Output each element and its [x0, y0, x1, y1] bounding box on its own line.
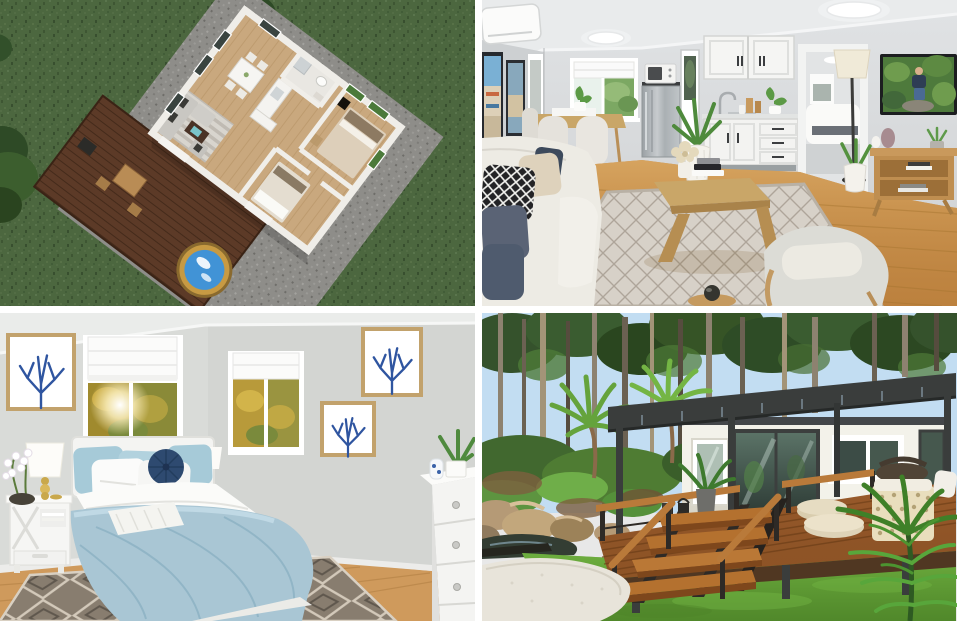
window-left	[83, 335, 183, 451]
floorplan-scene	[0, 0, 475, 306]
art-frame-coral	[322, 403, 374, 457]
roman-blind	[88, 337, 177, 379]
armchair-cushion	[781, 241, 863, 280]
gallery-photo-exterior[interactable]	[482, 313, 957, 621]
gallery-photo-floorplan[interactable]	[0, 0, 475, 306]
navy-round-cushion	[148, 449, 184, 485]
pergola-post	[834, 403, 840, 497]
gold-dish	[50, 495, 62, 500]
upper-cabinets	[704, 36, 794, 79]
art-frame-coral	[363, 329, 421, 395]
pergola-post	[944, 379, 951, 485]
blue-white-jar	[430, 459, 443, 479]
art-frame-coral	[8, 335, 74, 409]
tv	[880, 54, 957, 115]
nightstand	[6, 495, 72, 573]
exterior-scene	[482, 313, 957, 621]
gallery-photo-bedroom[interactable]	[0, 313, 475, 621]
cutting-board	[746, 98, 753, 113]
roman-blind	[233, 353, 299, 379]
fridge	[642, 82, 680, 157]
bedroom-scene	[0, 313, 475, 621]
air-conditioner	[482, 4, 541, 45]
living-kitchen-scene	[482, 0, 957, 306]
sofa	[482, 136, 602, 306]
photo-collage-grid	[0, 0, 957, 621]
dirt-slope	[482, 471, 542, 495]
gallery-photo-living-kitchen[interactable]	[482, 0, 957, 306]
table-runner	[552, 108, 596, 116]
microwave	[645, 64, 676, 83]
sun-glow	[90, 375, 150, 435]
window-right	[228, 351, 304, 455]
